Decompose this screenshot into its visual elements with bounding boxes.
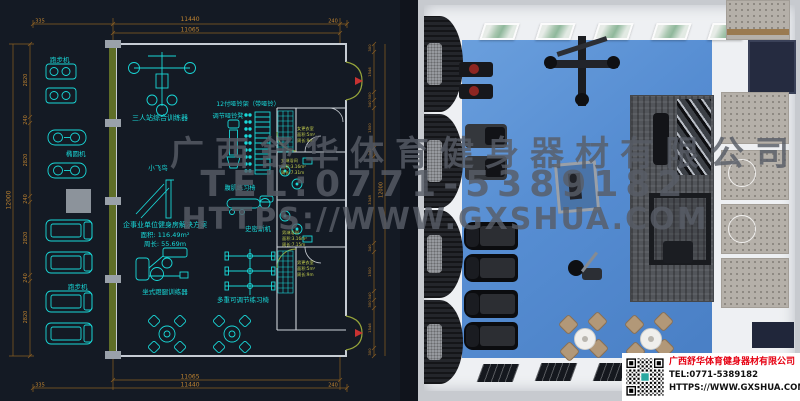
dim-bottom-inner: 11065 (180, 374, 199, 381)
dim-right-seg: 300 (367, 92, 372, 100)
dim-right-seg: 300 (367, 348, 372, 356)
contact-card: 广西舒华体育健身器材有限公司 TEL:0771-5389182 HTTPS://… (622, 353, 800, 401)
dim-top-total: 11440 (180, 16, 199, 23)
ceiling-light (651, 23, 692, 40)
label-multi-bench: 多重可调节练习椅 (217, 295, 270, 304)
render-treadmill (464, 222, 518, 250)
render-bench (653, 113, 669, 165)
label-dumbbell-rack: 12付哑铃架（带哑铃） (216, 100, 280, 108)
render-bench-machine (465, 156, 507, 180)
dim-left-seg: 2820 (23, 311, 29, 324)
render-dark-panel (748, 40, 796, 94)
render-treadmill (464, 290, 518, 318)
render-elliptical (459, 84, 493, 99)
svg-text:周长:7.31m: 周长:7.31m (281, 169, 304, 176)
svg-text:周长:9m: 周长:9m (297, 137, 314, 144)
room-women-locker: 女更衣室 (297, 125, 314, 132)
dim-right-seg: 1500 (367, 267, 372, 277)
render-table-set (561, 314, 609, 362)
render-niche (721, 204, 789, 254)
render-treadmill (464, 322, 518, 350)
dim-top-inner: 11065 (180, 27, 199, 34)
render-treadmill (464, 254, 518, 282)
render-poster-mat (535, 363, 578, 381)
dim-bottom-right: 240 (328, 383, 338, 389)
svg-text:周长:9m: 周长:9m (297, 271, 314, 278)
render-niche (721, 150, 789, 200)
label-triple-trainer: 三人站综合训练器 (132, 113, 188, 122)
dim-left-seg: 240 (23, 115, 29, 125)
dim-left-total: 12000 (6, 190, 13, 209)
render-poster-mat (477, 364, 520, 382)
label-fly-bird: 小飞鸟 (148, 163, 168, 172)
svg-text:周长:7.15m: 周长:7.15m (282, 241, 305, 248)
label-treadmill-top: 跑步机 (50, 55, 70, 64)
render-dumbbell-rack (677, 99, 711, 175)
screenshot-root: 11440 335 240 11065 11065 11440 335 240 … (0, 0, 800, 401)
dim-bottom-total: 11440 (180, 382, 199, 389)
label-elliptical: 椭圆机 (66, 149, 86, 158)
column-block (66, 189, 91, 213)
svg-text:面积:5m²: 面积:5m² (297, 265, 316, 272)
render-multi-gym (546, 36, 618, 106)
render-frame-machine (554, 160, 600, 213)
dim-right-seg: 300 (367, 300, 372, 308)
dim-right-seg: 1546 (367, 67, 372, 77)
cad-floorplan: 11440 335 240 11065 11065 11440 335 240 … (0, 0, 400, 401)
dim-bottom-left: 335 (35, 383, 45, 389)
solution-area: 面积: 116.49m² (141, 230, 190, 239)
label-ab-chair: 腹肌练习椅 (225, 184, 256, 192)
solution-title: 企事业单位健身房解决方案 (123, 220, 207, 229)
dim-right-seg: 300 (367, 44, 372, 52)
dim-right-seg: 340 (367, 292, 372, 300)
dim-left-seg: 2820 (23, 154, 29, 167)
svg-text:面积:5m²: 面积:5m² (297, 131, 316, 138)
dim-right-seg: 340 (367, 244, 372, 252)
qr-code (625, 357, 665, 397)
label-treadmill-bottom: 跑步机 (68, 282, 88, 291)
render-niche (726, 0, 790, 40)
dim-left-seg: 240 (23, 273, 29, 283)
solution-perimeter: 周长: 55.69m (144, 239, 186, 248)
dim-right-seg: 1546 (367, 323, 372, 333)
render-bench-machine (465, 124, 507, 148)
dim-left-seg: 240 (23, 194, 29, 204)
render-niche (721, 258, 789, 308)
contact-company: 广西舒华体育健身器材有限公司 (669, 356, 799, 369)
dim-right-seg: 1500 (367, 123, 372, 133)
contact-url: HTTPS://WWW.GXSHUA.COM (669, 382, 799, 395)
svg-text:面积:3.16m²: 面积:3.16m² (282, 235, 307, 242)
svg-text:面积:3.16m²: 面积:3.16m² (281, 163, 306, 170)
label-leg-press: 坐式蹬腿训练器 (142, 287, 188, 296)
room-men-locker: 男更衣室 (297, 259, 314, 266)
dim-top-right: 240 (328, 19, 338, 25)
ceiling-light (479, 23, 520, 40)
label-smith: 史密斯机 (245, 224, 272, 233)
dim-right-total: 12000 (379, 182, 385, 198)
contact-tel: TEL:0771-5389182 (669, 369, 799, 382)
render-seated-machine (560, 250, 604, 288)
dim-top-left: 335 (35, 19, 45, 25)
room-men-shower: 男淋浴间 (282, 229, 299, 236)
dim-left-seg: 2820 (23, 232, 29, 245)
dim-left-seg: 2820 (23, 74, 29, 87)
dim-right-seg: 340 (367, 100, 372, 108)
render-rack-machine (663, 241, 693, 263)
render-dark-panel (752, 322, 794, 348)
label-dumbbell-bench: 调节哑铃凳 (213, 112, 244, 120)
render-elliptical (459, 62, 493, 77)
dim-right-seg: 3348 (367, 195, 372, 205)
render-mat-zone (630, 95, 714, 302)
dim-right-seg: 340 (367, 148, 372, 156)
room-women-shower: 女淋浴间 (281, 157, 298, 164)
render-niche (721, 92, 789, 144)
